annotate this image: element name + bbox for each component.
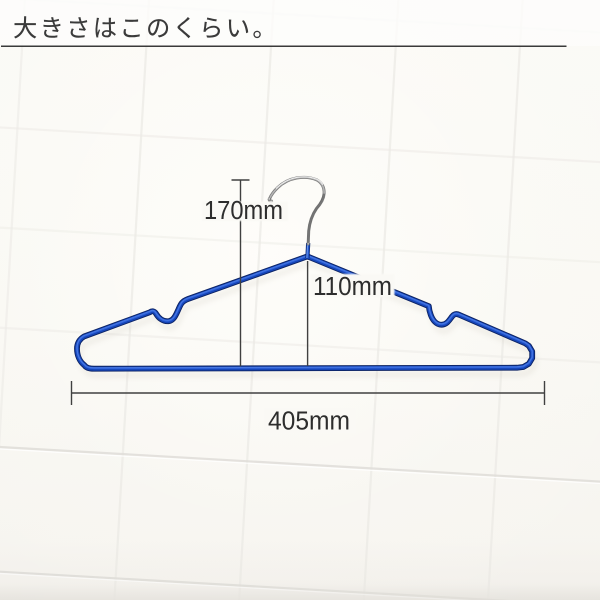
svg-text:170mm: 170mm	[204, 197, 283, 225]
svg-text:110mm: 110mm	[313, 273, 392, 301]
svg-text:405mm: 405mm	[268, 408, 350, 436]
